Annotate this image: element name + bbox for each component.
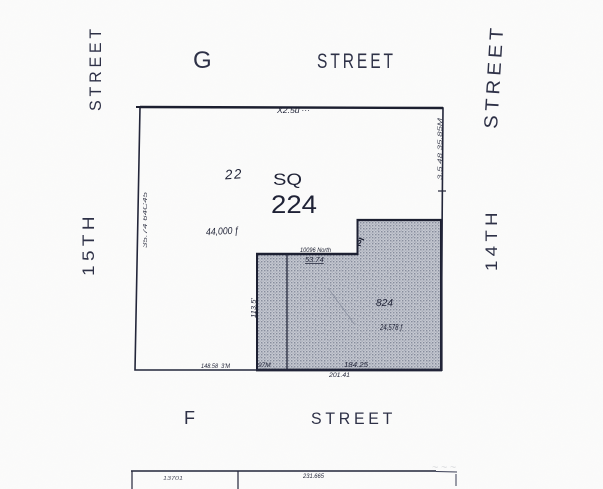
svg-text:SQ: SQ: [273, 170, 302, 189]
svg-text:10096 North: 10096 North: [300, 247, 331, 254]
svg-text:22: 22: [223, 166, 243, 182]
svg-text:X2.5u ···: X2.5u ···: [276, 106, 310, 115]
svg-text:15TH: 15TH: [79, 212, 98, 276]
svg-text:224: 224: [271, 191, 317, 219]
svg-text:184.25: 184.25: [344, 360, 369, 369]
svg-text:113.5': 113.5': [251, 297, 258, 318]
svg-text:STREET: STREET: [86, 25, 105, 111]
svg-text:35.74 64C45: 35.74 64C45: [143, 191, 149, 248]
svg-text:14TH: 14TH: [482, 208, 501, 271]
svg-text:2: 2: [356, 239, 362, 248]
svg-text:~ ~ ~: ~ ~ ~: [432, 465, 457, 471]
svg-text:STREET: STREET: [311, 409, 396, 428]
svg-text:231.665: 231.665: [302, 473, 324, 480]
svg-text:44,000 ƒ: 44,000 ƒ: [206, 225, 240, 238]
svg-text:53.74: 53.74: [305, 255, 324, 264]
svg-text:3.5 48 35.85M: 3.5 48 35.85M: [437, 117, 444, 180]
svg-text:97M: 97M: [258, 362, 271, 369]
svg-text:STREET: STREET: [317, 50, 396, 73]
svg-text:G: G: [193, 47, 216, 74]
svg-text:824: 824: [376, 298, 393, 309]
svg-text:13701: 13701: [163, 476, 183, 482]
svg-text:F: F: [184, 408, 199, 428]
svg-text:24,578 ƒ: 24,578 ƒ: [379, 323, 403, 332]
svg-text:148.58 3'M: 148.58 3'M: [201, 363, 231, 370]
svg-text:201.41: 201.41: [328, 372, 350, 379]
